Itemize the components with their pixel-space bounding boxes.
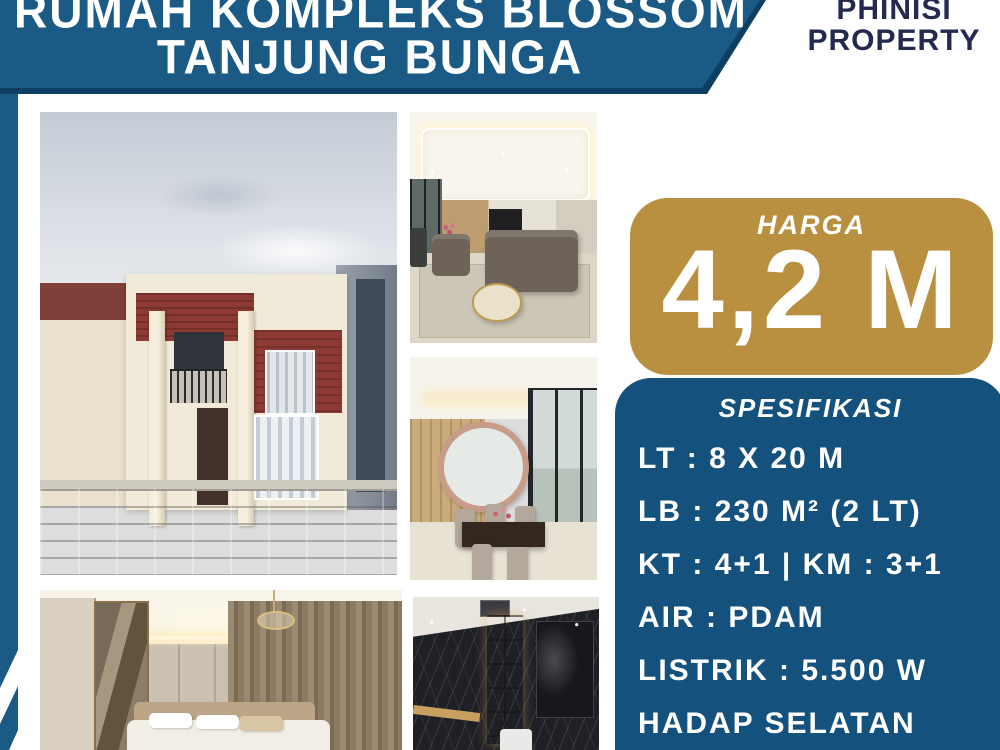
dining-chair [410, 228, 427, 267]
header-banner: RUMAH KOMPLEKS BLOSSOM TANJUNG BUNGA [0, 0, 780, 89]
armchair [432, 234, 469, 276]
pillow [196, 715, 239, 729]
coffee-table [472, 283, 523, 322]
price-value: 4,2 M [630, 231, 993, 349]
spec-land-size: LT : 8 X 20 M [638, 432, 1000, 485]
neighbor-right-glass [356, 279, 385, 492]
round-mirror [438, 422, 529, 513]
dining-chair [472, 544, 493, 580]
wood-shelf-column [487, 615, 522, 744]
brand-logo: PHINISI PROPERTY [798, 0, 990, 56]
dining-table [462, 522, 544, 547]
pillow [149, 713, 192, 727]
spec-list: LT : 8 X 20 M LB : 230 M² (2 LT) KT : 4+… [615, 432, 1000, 750]
spec-orientation: HADAP SELATAN [638, 697, 1000, 750]
listing-title: RUMAH KOMPLEKS BLOSSOM TANJUNG BUNGA [14, 0, 726, 80]
brand-line-1: PHINISI [798, 0, 990, 25]
spec-water-source: AIR : PDAM [638, 591, 1000, 644]
wardrobe [40, 598, 96, 750]
spec-bedrooms-bathrooms: KT : 4+1 | KM : 3+1 [638, 538, 1000, 591]
toilet-fixture [500, 729, 532, 750]
photo-dining-room [410, 357, 597, 580]
photo-living-room [410, 112, 597, 343]
property-flyer: RUMAH KOMPLEKS BLOSSOM TANJUNG BUNGA PHI… [0, 0, 1000, 750]
photo-house-exterior [40, 112, 397, 575]
neighbor-left-accent [40, 283, 126, 320]
paved-driveway [40, 489, 397, 575]
photo-bathroom [413, 597, 599, 750]
brand-line-2: PROPERTY [798, 25, 990, 56]
spec-card: SPESIFIKASI LT : 8 X 20 M LB : 230 M² (2… [615, 378, 1000, 750]
window-wall [528, 388, 597, 535]
pillow [239, 716, 282, 730]
flower-centerpiece [489, 504, 515, 524]
upper-window [174, 332, 224, 371]
dining-chair [507, 547, 528, 580]
chevron-decoration [0, 620, 18, 750]
chandelier [257, 611, 295, 630]
pendant-cord [273, 590, 275, 612]
spec-electricity: LISTRIK : 5.500 W [638, 644, 1000, 697]
balcony-railing [170, 369, 227, 403]
photo-bedroom [40, 590, 402, 750]
spec-heading: SPESIFIKASI [615, 393, 1000, 424]
spec-building-size: LB : 230 M² (2 LT) [638, 485, 1000, 538]
title-line-2: TANJUNG BUNGA [14, 34, 726, 80]
price-card: HARGA 4,2 M [630, 198, 993, 375]
left-accent-bar [0, 0, 18, 750]
window-upper-right [265, 350, 315, 414]
